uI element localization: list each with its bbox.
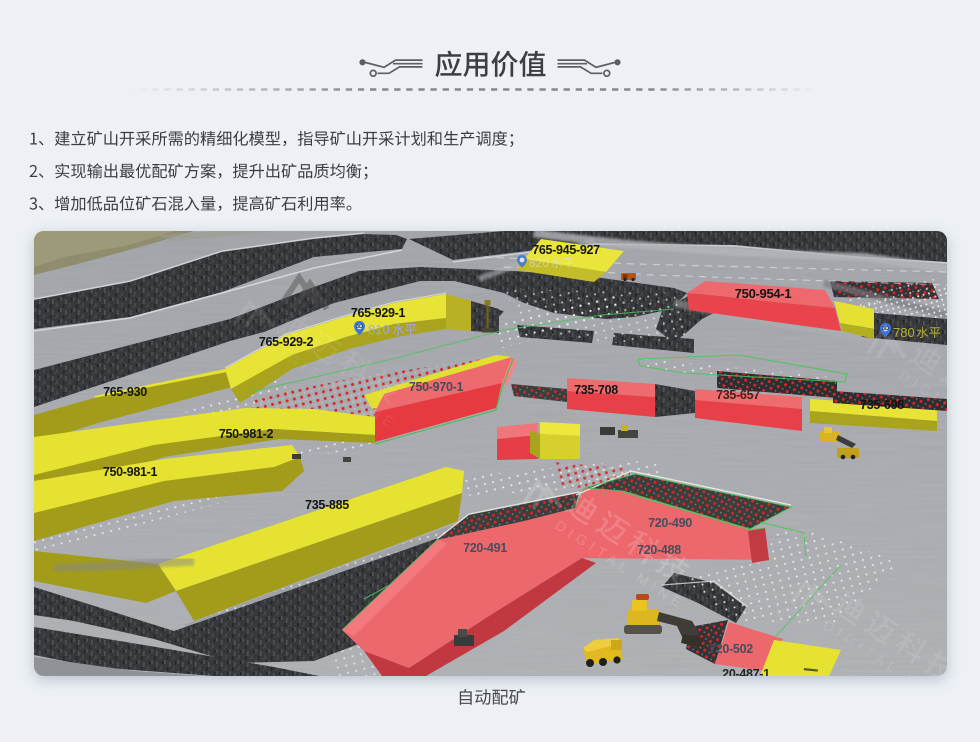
svg-text:780: 780: [893, 325, 915, 340]
svg-text:810: 810: [368, 322, 390, 337]
svg-text:765-945-927: 765-945-927: [532, 243, 600, 257]
svg-text:735-708: 735-708: [574, 383, 618, 397]
svg-text:720-490: 720-490: [648, 516, 692, 530]
svg-text:765-930: 765-930: [103, 385, 147, 399]
svg-text:735-698: 735-698: [860, 398, 904, 412]
svg-text:720-502: 720-502: [709, 642, 753, 656]
svg-text:720-491: 720-491: [463, 541, 507, 555]
svg-text:20-487-1: 20-487-1: [722, 667, 770, 676]
svg-text:750-954-1: 750-954-1: [735, 286, 792, 301]
svg-text:3D: 3D: [882, 326, 889, 332]
svg-text:820: 820: [529, 256, 549, 270]
svg-text:750-981-1: 750-981-1: [103, 465, 158, 479]
svg-text:765-929-1: 765-929-1: [351, 306, 406, 320]
svg-text:735-885: 735-885: [305, 498, 349, 512]
svg-text:750-981-2: 750-981-2: [219, 427, 274, 441]
svg-text:3D: 3D: [356, 324, 363, 330]
svg-text:750-970-1: 750-970-1: [409, 380, 464, 394]
svg-text:735-657: 735-657: [716, 388, 760, 402]
svg-text:765-929-2: 765-929-2: [259, 335, 314, 349]
svg-text:720-488: 720-488: [637, 543, 681, 557]
